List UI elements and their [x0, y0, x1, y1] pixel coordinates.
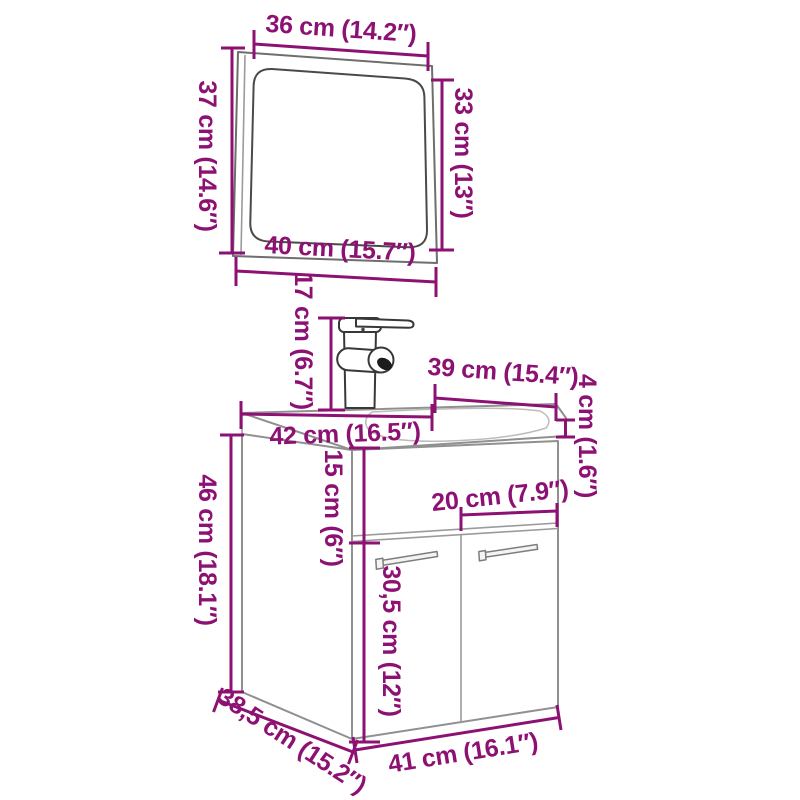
label-mirror-height-right: 33 cm (13″) — [449, 88, 477, 219]
label-faucet-height: 17 cm (6.7″) — [289, 272, 317, 410]
mirror — [233, 52, 437, 263]
label-apron-height: 15 cm (6″) — [319, 449, 347, 566]
mirror-glass — [250, 69, 427, 247]
faucet-lever — [356, 319, 414, 328]
label-cabinet-height: 46 cm (18.1″) — [193, 474, 221, 625]
faucet — [336, 318, 413, 408]
faucet-screw — [361, 328, 365, 332]
label-cabinet-width: 41 cm (16.1″) — [386, 727, 540, 778]
diagram-svg: 36 cm (14.2″) 37 cm (14.6″) 33 cm (13″) … — [0, 0, 800, 800]
label-mirror-width-top: 36 cm (14.2″) — [265, 10, 418, 48]
label-mirror-height-left: 37 cm (14.6″) — [193, 80, 221, 231]
label-counter-depth: 39 cm (15.4″) — [427, 353, 580, 391]
label-counter-thickness: 4 cm (1.6″) — [573, 374, 601, 498]
label-door-height: 30,5 cm (12″) — [377, 565, 405, 716]
label-counter-width: 42 cm (16.5″) — [269, 417, 421, 450]
dimension-diagram: 36 cm (14.2″) 37 cm (14.6″) 33 cm (13″) … — [0, 0, 800, 800]
